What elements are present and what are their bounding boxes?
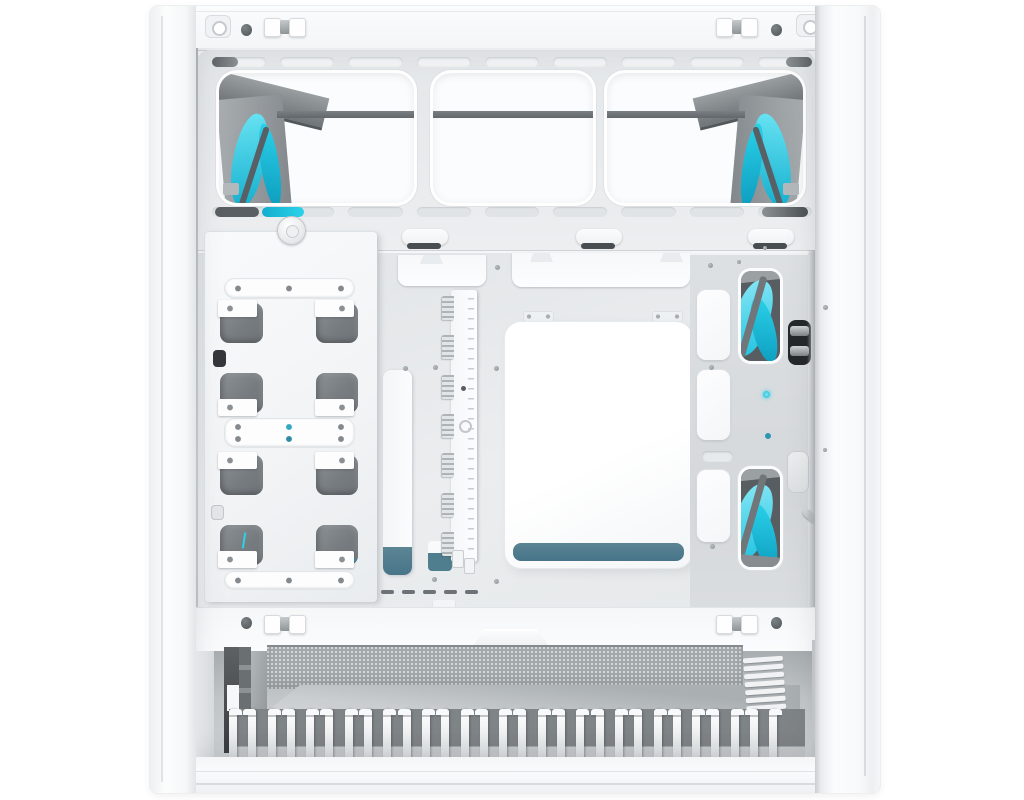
wall-screw (763, 246, 767, 250)
vent-slot (621, 207, 675, 217)
fan-view-cutout-upper (741, 271, 780, 361)
vent-dash (402, 590, 415, 594)
comb-bar (745, 688, 785, 696)
cable-grommet-light (787, 451, 809, 493)
cable-channel-panel (383, 370, 412, 575)
wall-screw (737, 260, 741, 264)
rear-panel-seam (864, 16, 866, 776)
standoff-screw (494, 366, 499, 371)
rivet-top-right (771, 24, 782, 36)
chassis-bar (277, 111, 414, 118)
fan-view-cutout-lower (741, 469, 780, 567)
cable-hook (402, 229, 448, 245)
cable-cover-right (512, 253, 690, 287)
chassis-bar (433, 111, 593, 118)
vent-dash (444, 590, 457, 594)
product-photo-pc-case (0, 0, 1024, 800)
access-panel (505, 322, 692, 568)
panel-clip-top-right-a (716, 18, 733, 37)
vent-dash (465, 590, 478, 594)
wall-shadow (807, 250, 815, 607)
mount-slot-bar (225, 279, 354, 298)
comb-bar (746, 696, 786, 704)
comb-bar (743, 664, 783, 672)
front-panel-edge (150, 6, 196, 793)
front-fan-top-left (219, 73, 414, 203)
bracket-highlight (227, 685, 239, 711)
rear-wall-cover (697, 370, 730, 440)
rear-wall-slot (702, 451, 733, 462)
bracket-hole-top-left (205, 15, 231, 38)
vent-slot (348, 57, 402, 67)
cyan-led (765, 433, 771, 439)
mount-tab (218, 551, 257, 568)
vent-slot (348, 207, 402, 217)
mount-slot-bar (225, 419, 354, 447)
vent-slot (417, 57, 471, 67)
hub-connector (442, 375, 454, 399)
hub-connector (442, 414, 454, 438)
hub-connector (442, 296, 454, 320)
vent-slot (485, 57, 539, 67)
cover-notch (530, 253, 553, 262)
dust-filter-mesh (267, 645, 743, 689)
bottom-frame (150, 757, 880, 793)
vent-slot (553, 207, 607, 217)
mount-tab (315, 399, 354, 416)
rivet-top-left (241, 24, 252, 36)
teal-edge (383, 547, 412, 575)
chamber-left-wall (196, 651, 214, 757)
hub-connector (442, 493, 454, 517)
rear-wall-cover (697, 470, 730, 542)
psu-vent-dashes (381, 590, 483, 594)
panel-clip-bottom-left-a (264, 615, 281, 634)
cable-hook (748, 229, 794, 245)
rear-panel-screw (823, 448, 827, 452)
standoff-screw (403, 366, 408, 371)
vent-dash (381, 590, 394, 594)
wall-screw (710, 544, 715, 549)
drive-mount-row (205, 373, 377, 413)
corner-tab (223, 183, 239, 195)
rear-panel-screw (823, 305, 828, 310)
cover-notch (420, 255, 443, 264)
drive-mount-row (205, 303, 377, 343)
top-vent-slot-row (212, 57, 812, 67)
teal-lower-edge (513, 543, 684, 561)
standoff-screw (433, 365, 438, 370)
hub-bottom-connector (452, 550, 464, 568)
cyan-led (763, 391, 770, 398)
vent-cyan-glow (262, 207, 304, 217)
retention-clip (652, 311, 683, 322)
hub-bottom-connector (464, 558, 475, 574)
hub-connector (442, 453, 454, 477)
wall-screw (709, 365, 714, 370)
fan-cutout-left (219, 73, 414, 203)
fan-cutout-middle (433, 73, 593, 203)
rivet-bottom-right (771, 617, 782, 629)
hub-connector-column (442, 296, 454, 556)
drive-mount-row (205, 525, 377, 565)
cable-cover-left (398, 255, 486, 286)
mount-slot-bar (225, 572, 354, 589)
mount-tab (218, 300, 257, 317)
rear-wall-cover (697, 290, 730, 360)
vent-fan-shadow-left (215, 207, 259, 217)
rear-panel-edge (815, 6, 880, 793)
cable-notch (211, 505, 224, 520)
vent-dash (423, 590, 436, 594)
front-fan-top-right (607, 73, 803, 203)
vent-slot (690, 207, 744, 217)
standoff-screw (432, 577, 437, 582)
retention-clip (523, 311, 554, 322)
wall-screw (708, 263, 713, 268)
corner-tab (783, 183, 799, 195)
hub-connector (442, 335, 454, 359)
vent-slot (417, 207, 471, 217)
rivet-bottom-left (241, 617, 252, 629)
mount-tab (315, 452, 354, 469)
drive-mount-plate (205, 232, 377, 602)
empty-cutout (433, 73, 593, 203)
mount-tab (218, 452, 257, 469)
vent-slot (690, 57, 744, 67)
vent-slot (553, 57, 607, 67)
fan-cutout-right (607, 73, 803, 203)
mount-tab (218, 399, 257, 416)
panel-clip-bottom-right-a (716, 615, 733, 634)
panel-clip-bottom-left-b (289, 615, 306, 634)
comb-bar (744, 680, 784, 688)
vent-slot (485, 207, 539, 217)
vent-end-cap-left (212, 57, 238, 67)
panel-clip-bottom-right-b (741, 615, 758, 634)
pcb-screw-ring (459, 420, 472, 433)
panel-clip-top-left-b (289, 18, 306, 37)
standoff-screw (495, 265, 500, 270)
vent-fan-shadow-right (762, 207, 808, 217)
vent-end-cap-right (786, 57, 812, 67)
pcb-dot (461, 386, 466, 391)
vent-slot (280, 57, 334, 67)
standoff-screw (494, 579, 499, 584)
mount-tab (315, 551, 354, 568)
thumbscrew (277, 216, 306, 245)
cable-hook (576, 229, 622, 245)
front-panel-seam (161, 16, 163, 782)
chassis-bar (607, 111, 745, 118)
cover-notch (660, 253, 683, 262)
vent-slot (621, 57, 675, 67)
panel-clip-top-right-b (741, 18, 758, 37)
mount-tab (315, 300, 354, 317)
cable-notch (213, 350, 226, 367)
comb-bar (744, 672, 784, 680)
panel-clip-top-left-a (264, 18, 281, 37)
fan-argb-hub-pcb (451, 290, 477, 562)
drive-mount-row (205, 455, 377, 495)
